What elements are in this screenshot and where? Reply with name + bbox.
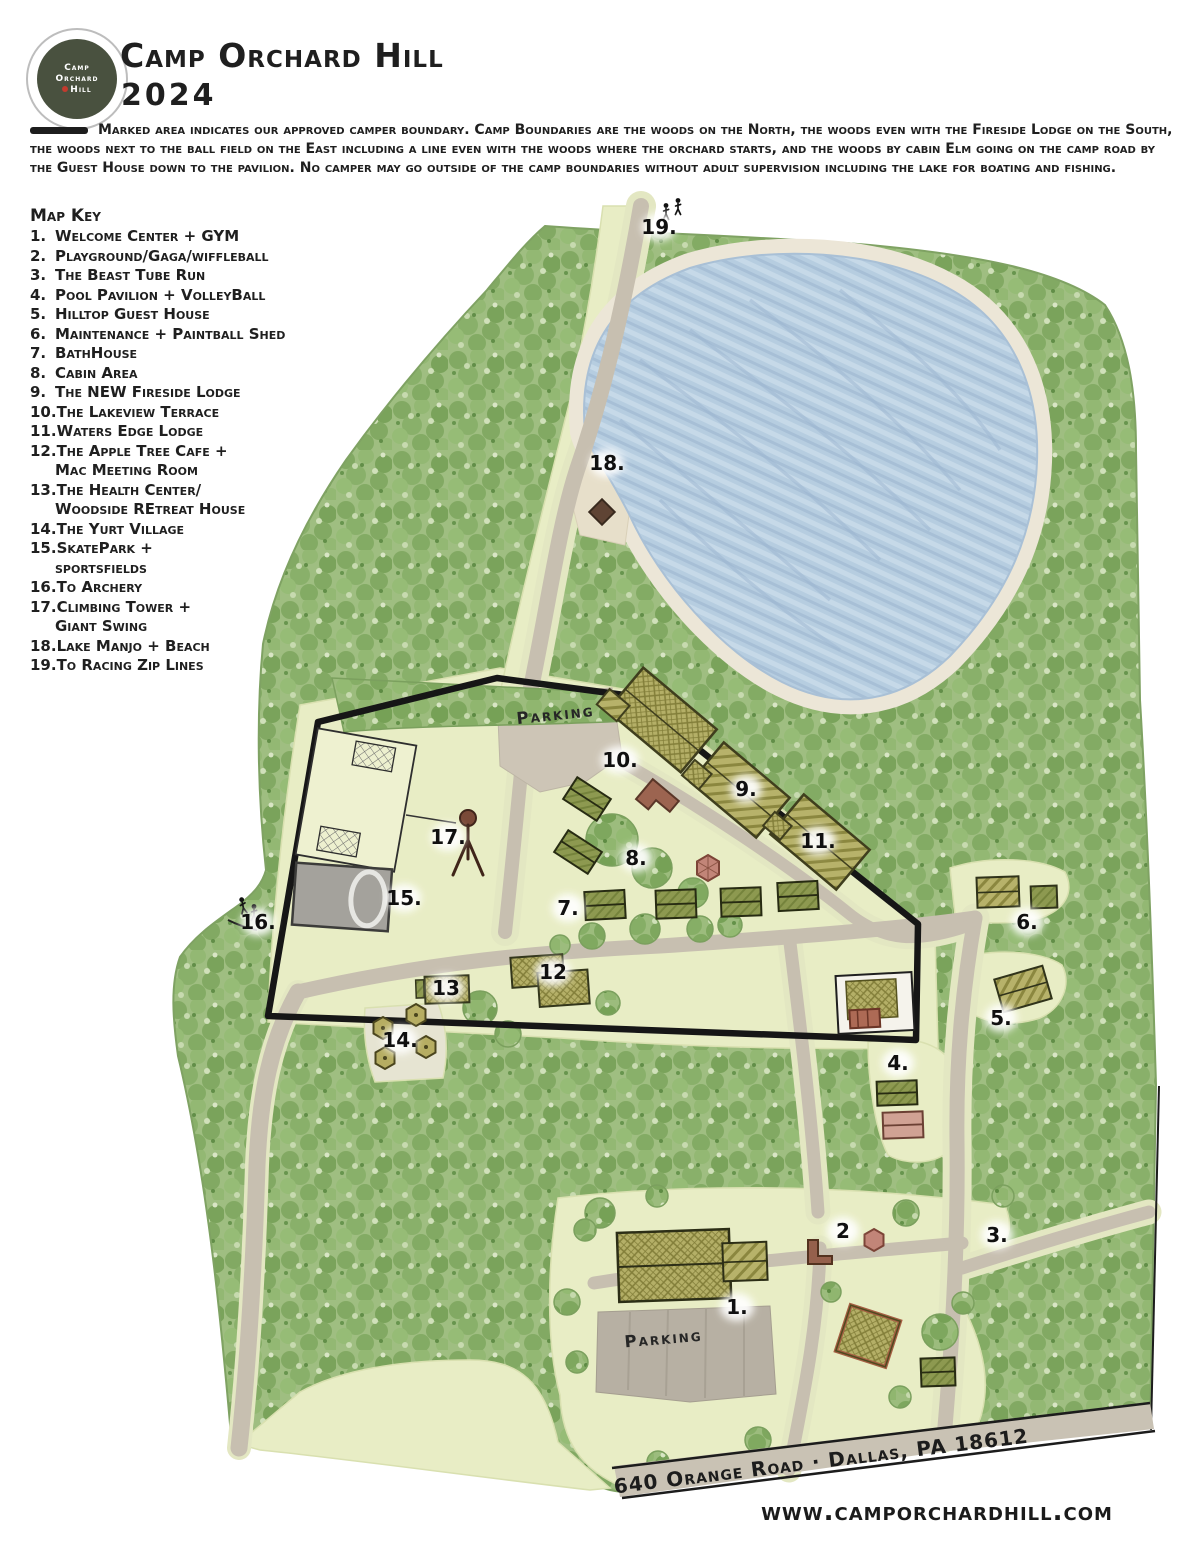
map-marker-18: 18. — [589, 449, 624, 477]
svg-text:11.: 11. — [800, 829, 835, 853]
map-marker-1: 1. — [720, 1293, 754, 1321]
svg-text:16.: 16. — [240, 910, 275, 934]
camp-logo-badge: Camp Orchard Hill — [37, 39, 117, 119]
map-key-item-18: 18.Lake Manjo + Beach — [30, 637, 335, 657]
boundary-note-text: Marked area indicates our approved campe… — [30, 122, 1172, 176]
svg-text:6.: 6. — [1016, 910, 1038, 934]
map-marker-15: 15. — [386, 884, 421, 912]
map-marker-10: 10. — [601, 746, 639, 774]
cabin — [877, 1080, 918, 1105]
cabin — [584, 890, 625, 920]
map-marker-6: 6. — [1011, 908, 1043, 936]
map-key-item-12b: Mac Meeting Room — [30, 461, 335, 481]
svg-text:8.: 8. — [625, 846, 647, 870]
map-key-item-10: 10.The Lakeview Terrace — [30, 403, 335, 423]
map-key-item-14: 14.The Yurt Village — [30, 520, 335, 540]
logo-line2: Orchard — [56, 74, 99, 85]
camp-map-page: 640 Orange Road · Dallas, PA 18612 Parki… — [0, 0, 1200, 1553]
map-marker-5: 5. — [985, 1004, 1017, 1032]
svg-text:10.: 10. — [602, 748, 637, 772]
cabin — [721, 887, 762, 916]
gazebo — [697, 855, 719, 881]
map-marker-9: 9. — [730, 775, 762, 803]
svg-text:19.: 19. — [641, 215, 676, 239]
skatepark — [292, 863, 392, 932]
map-key-item-17: 17.Climbing Tower + — [30, 598, 335, 618]
svg-text:15.: 15. — [386, 886, 421, 910]
yurt — [407, 1004, 426, 1026]
map-key-item-15: 15.SkatePark + — [30, 539, 335, 559]
map-marker-8: 8. — [620, 844, 652, 872]
logo-line1: Camp — [64, 63, 90, 74]
map-key-item-13: 13.The Health Center/ — [30, 481, 335, 501]
map-marker-16: 16. — [240, 908, 275, 936]
apple-icon — [62, 86, 68, 92]
camp-logo: Camp Orchard Hill — [26, 28, 128, 130]
hiker-icon — [675, 198, 680, 214]
map-key-item-9: 9.The NEW Fireside Lodge — [30, 383, 335, 403]
yurt — [417, 1036, 436, 1058]
map-key-item-19: 19.To Racing Zip Lines — [30, 656, 335, 676]
map-key-item-16: 16.To Archery — [30, 578, 335, 598]
map-marker-7: 7. — [552, 894, 584, 922]
map-key-item-3: 3.The Beast Tube Run — [30, 266, 335, 286]
parking-lot-south — [596, 1306, 776, 1402]
cabin — [883, 1111, 924, 1138]
map-marker-12: 12 — [535, 958, 571, 986]
svg-text:5.: 5. — [990, 1006, 1012, 1030]
boundary-note: Marked area indicates our approved campe… — [30, 121, 1180, 178]
map-marker-11: 11. — [800, 827, 836, 855]
website-text: www.camporchardhill.com — [761, 1497, 1113, 1527]
map-key-item-1: 1.Welcome Center + GYM — [30, 227, 335, 247]
page-title: Camp Orchard Hill — [120, 36, 444, 75]
map-key-item-4: 4.Pool Pavilion + VolleyBall — [30, 286, 335, 306]
svg-text:9.: 9. — [735, 777, 757, 801]
map-key-item-12: 12.The Apple Tree Cafe + — [30, 442, 335, 462]
svg-text:13: 13 — [432, 976, 460, 1000]
boundary-line-swatch — [30, 127, 88, 134]
map-key-item-11: 11.Waters Edge Lodge — [30, 422, 335, 442]
svg-text:12: 12 — [539, 960, 567, 984]
map-marker-19: 19. — [641, 213, 676, 241]
svg-text:18.: 18. — [589, 451, 624, 475]
svg-text:3.: 3. — [986, 1223, 1008, 1247]
svg-text:2: 2 — [836, 1219, 850, 1243]
cabin — [777, 881, 818, 911]
gaga-pit — [865, 1229, 884, 1251]
svg-text:17.: 17. — [430, 825, 465, 849]
svg-text:1.: 1. — [726, 1295, 748, 1319]
map-key-item-17b: Giant Swing — [30, 617, 335, 637]
map-marker-3: 3. — [981, 1221, 1013, 1249]
map-marker-14: 14. — [382, 1026, 417, 1054]
map-key-item-15b: sportsfields — [30, 559, 335, 579]
svg-text:14.: 14. — [382, 1028, 417, 1052]
map-key: Map Key 1.Welcome Center + GYM 2.Playgro… — [30, 205, 335, 676]
svg-text:4.: 4. — [887, 1051, 909, 1075]
cabin — [921, 1357, 956, 1386]
map-key-item-8: 8.Cabin Area — [30, 364, 335, 384]
map-key-title: Map Key — [30, 205, 335, 227]
map-marker-2: 2 — [827, 1217, 859, 1245]
map-key-item-7: 7.BathHouse — [30, 344, 335, 364]
cabin — [656, 889, 697, 918]
sports-field — [296, 728, 417, 871]
map-marker-17: 17. — [430, 823, 465, 851]
map-key-item-6: 6.Maintenance + Paintball Shed — [30, 325, 335, 345]
map-key-item-13b: Woodside REtreat House — [30, 500, 335, 520]
map-key-item-5: 5.Hilltop Guest House — [30, 305, 335, 325]
map-marker-13: 13 — [428, 974, 464, 1002]
logo-line3: Hill — [62, 85, 91, 96]
map-year: 2024 — [121, 78, 217, 113]
map-marker-4: 4. — [882, 1049, 914, 1077]
building-pool-pavilion — [836, 972, 915, 1034]
map-key-item-2: 2.Playground/Gaga/wiffleball — [30, 247, 335, 267]
svg-text:7.: 7. — [557, 896, 579, 920]
